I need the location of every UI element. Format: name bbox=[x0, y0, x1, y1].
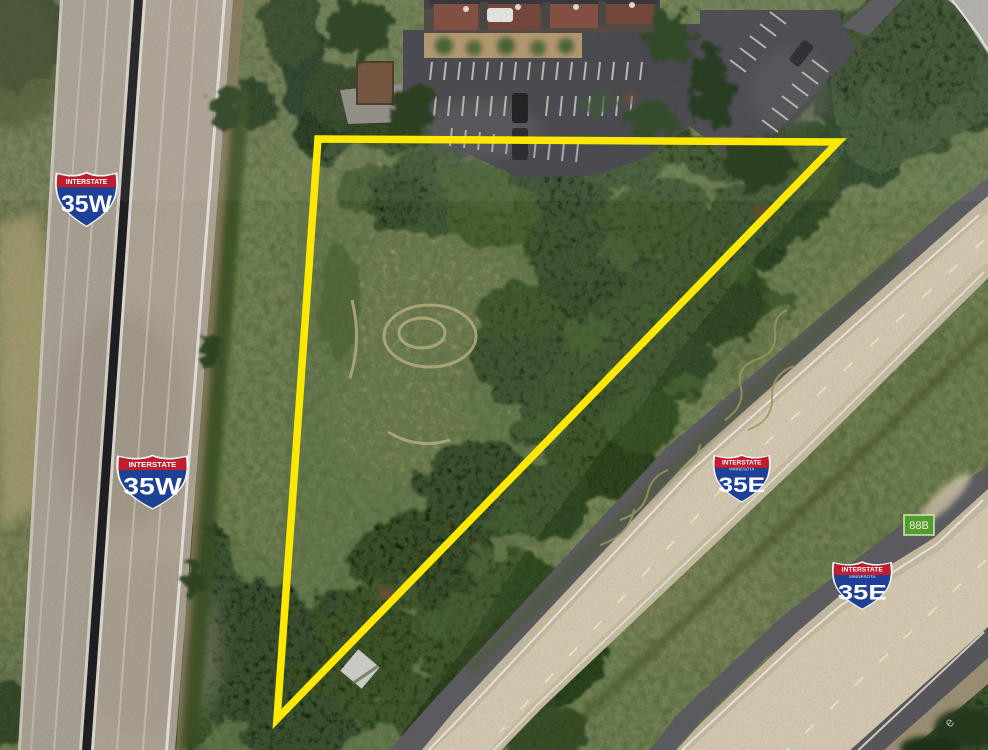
svg-text:MINNESOTA: MINNESOTA bbox=[849, 575, 876, 579]
svg-text:INTERSTATE: INTERSTATE bbox=[66, 177, 108, 186]
svg-text:35W: 35W bbox=[123, 474, 182, 500]
svg-text:35E: 35E bbox=[838, 580, 887, 605]
svg-text:35W: 35W bbox=[61, 191, 112, 218]
svg-text:MINNESOTA: MINNESOTA bbox=[729, 468, 754, 472]
svg-text:INTERSTATE: INTERSTATE bbox=[722, 460, 762, 467]
svg-text:88B: 88B bbox=[909, 520, 929, 532]
svg-text:35E: 35E bbox=[718, 473, 765, 497]
svg-text:INTERSTATE: INTERSTATE bbox=[842, 567, 884, 574]
svg-text:INTERSTATE: INTERSTATE bbox=[129, 461, 177, 469]
